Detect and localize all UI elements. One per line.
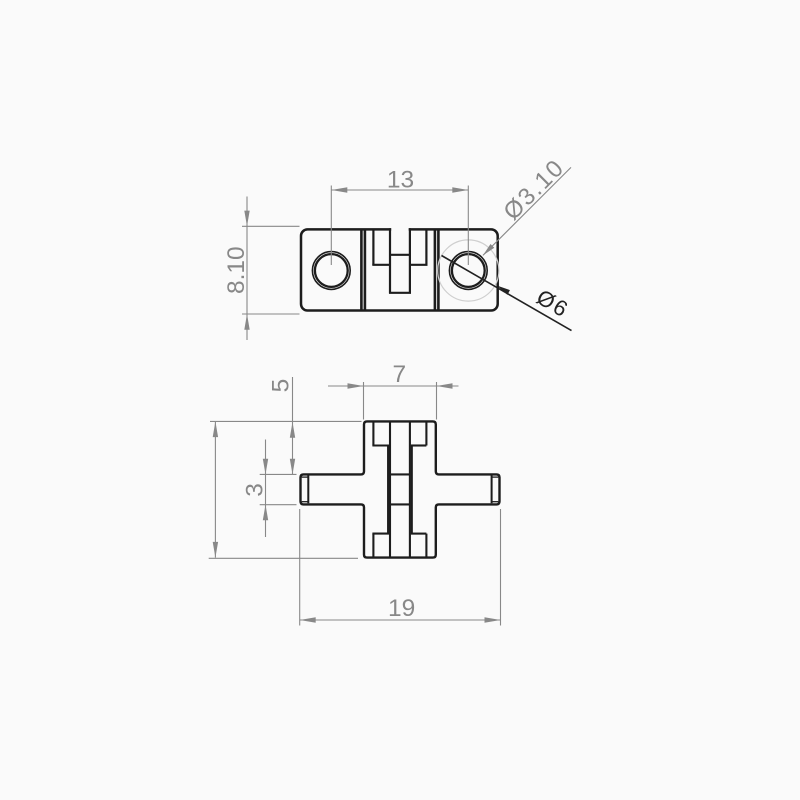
svg-text:3: 3	[241, 483, 268, 497]
svg-text:7: 7	[392, 361, 406, 388]
svg-text:5: 5	[268, 379, 295, 393]
svg-text:13: 13	[387, 166, 414, 193]
svg-text:8.10: 8.10	[223, 246, 250, 294]
svg-text:19: 19	[388, 595, 415, 622]
